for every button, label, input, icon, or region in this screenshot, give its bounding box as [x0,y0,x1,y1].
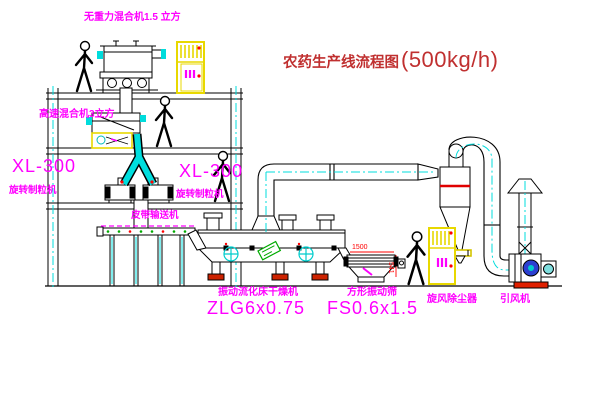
label-cyclone: 旋风除尘器 [427,295,477,305]
pesticide-line-flow-diagram: 农药生产线流程图 (500kg/h) 无重力混合机1.5 立方 高速混合机3立方… [0,0,600,403]
exhaust-stack [508,179,542,258]
granulator-left [105,178,135,203]
title-capacity: (500kg/h) [401,47,498,73]
label-granulator-left-model: XL-300 [12,157,76,175]
label-sieve-model: FS0.6x1.5 [327,299,418,317]
dimension-1500: 1500 [352,244,368,251]
fluid-bed-dryer [188,213,352,280]
gravity-mixer [96,41,166,113]
person-figure [156,97,172,147]
belt-conveyor [97,226,195,286]
label-dryer-name: 振动流化床干燥机 [218,288,298,298]
label-fan: 引风机 [500,295,530,305]
control-cabinet-upper [177,42,204,93]
title-text: 农药生产线流程图 [283,51,399,72]
person-figure [76,42,92,92]
label-granulator-right-name: 旋转制粒机 [176,190,224,200]
label-belt-conveyor: 皮带输送机 [131,211,179,221]
dimension-541: 541 [387,262,394,274]
person-figure [408,232,425,284]
induced-draft-fan [509,254,556,288]
label-sieve-name: 方形振动筛 [347,288,397,298]
diagram-title: 农药生产线流程图 (500kg/h) [283,47,498,73]
square-sieve [344,252,405,282]
label-granulator-right-model: XL-300 [179,162,243,180]
control-cabinet-lower [429,228,455,284]
label-gravity-mixer: 无重力混合机1.5 立方 [84,13,181,23]
label-high-speed-mixer: 高速混合机3立方 [39,110,115,120]
label-dryer-model: ZLG6x0.75 [207,299,305,317]
label-granulator-left-name: 旋转制粒机 [9,186,57,196]
